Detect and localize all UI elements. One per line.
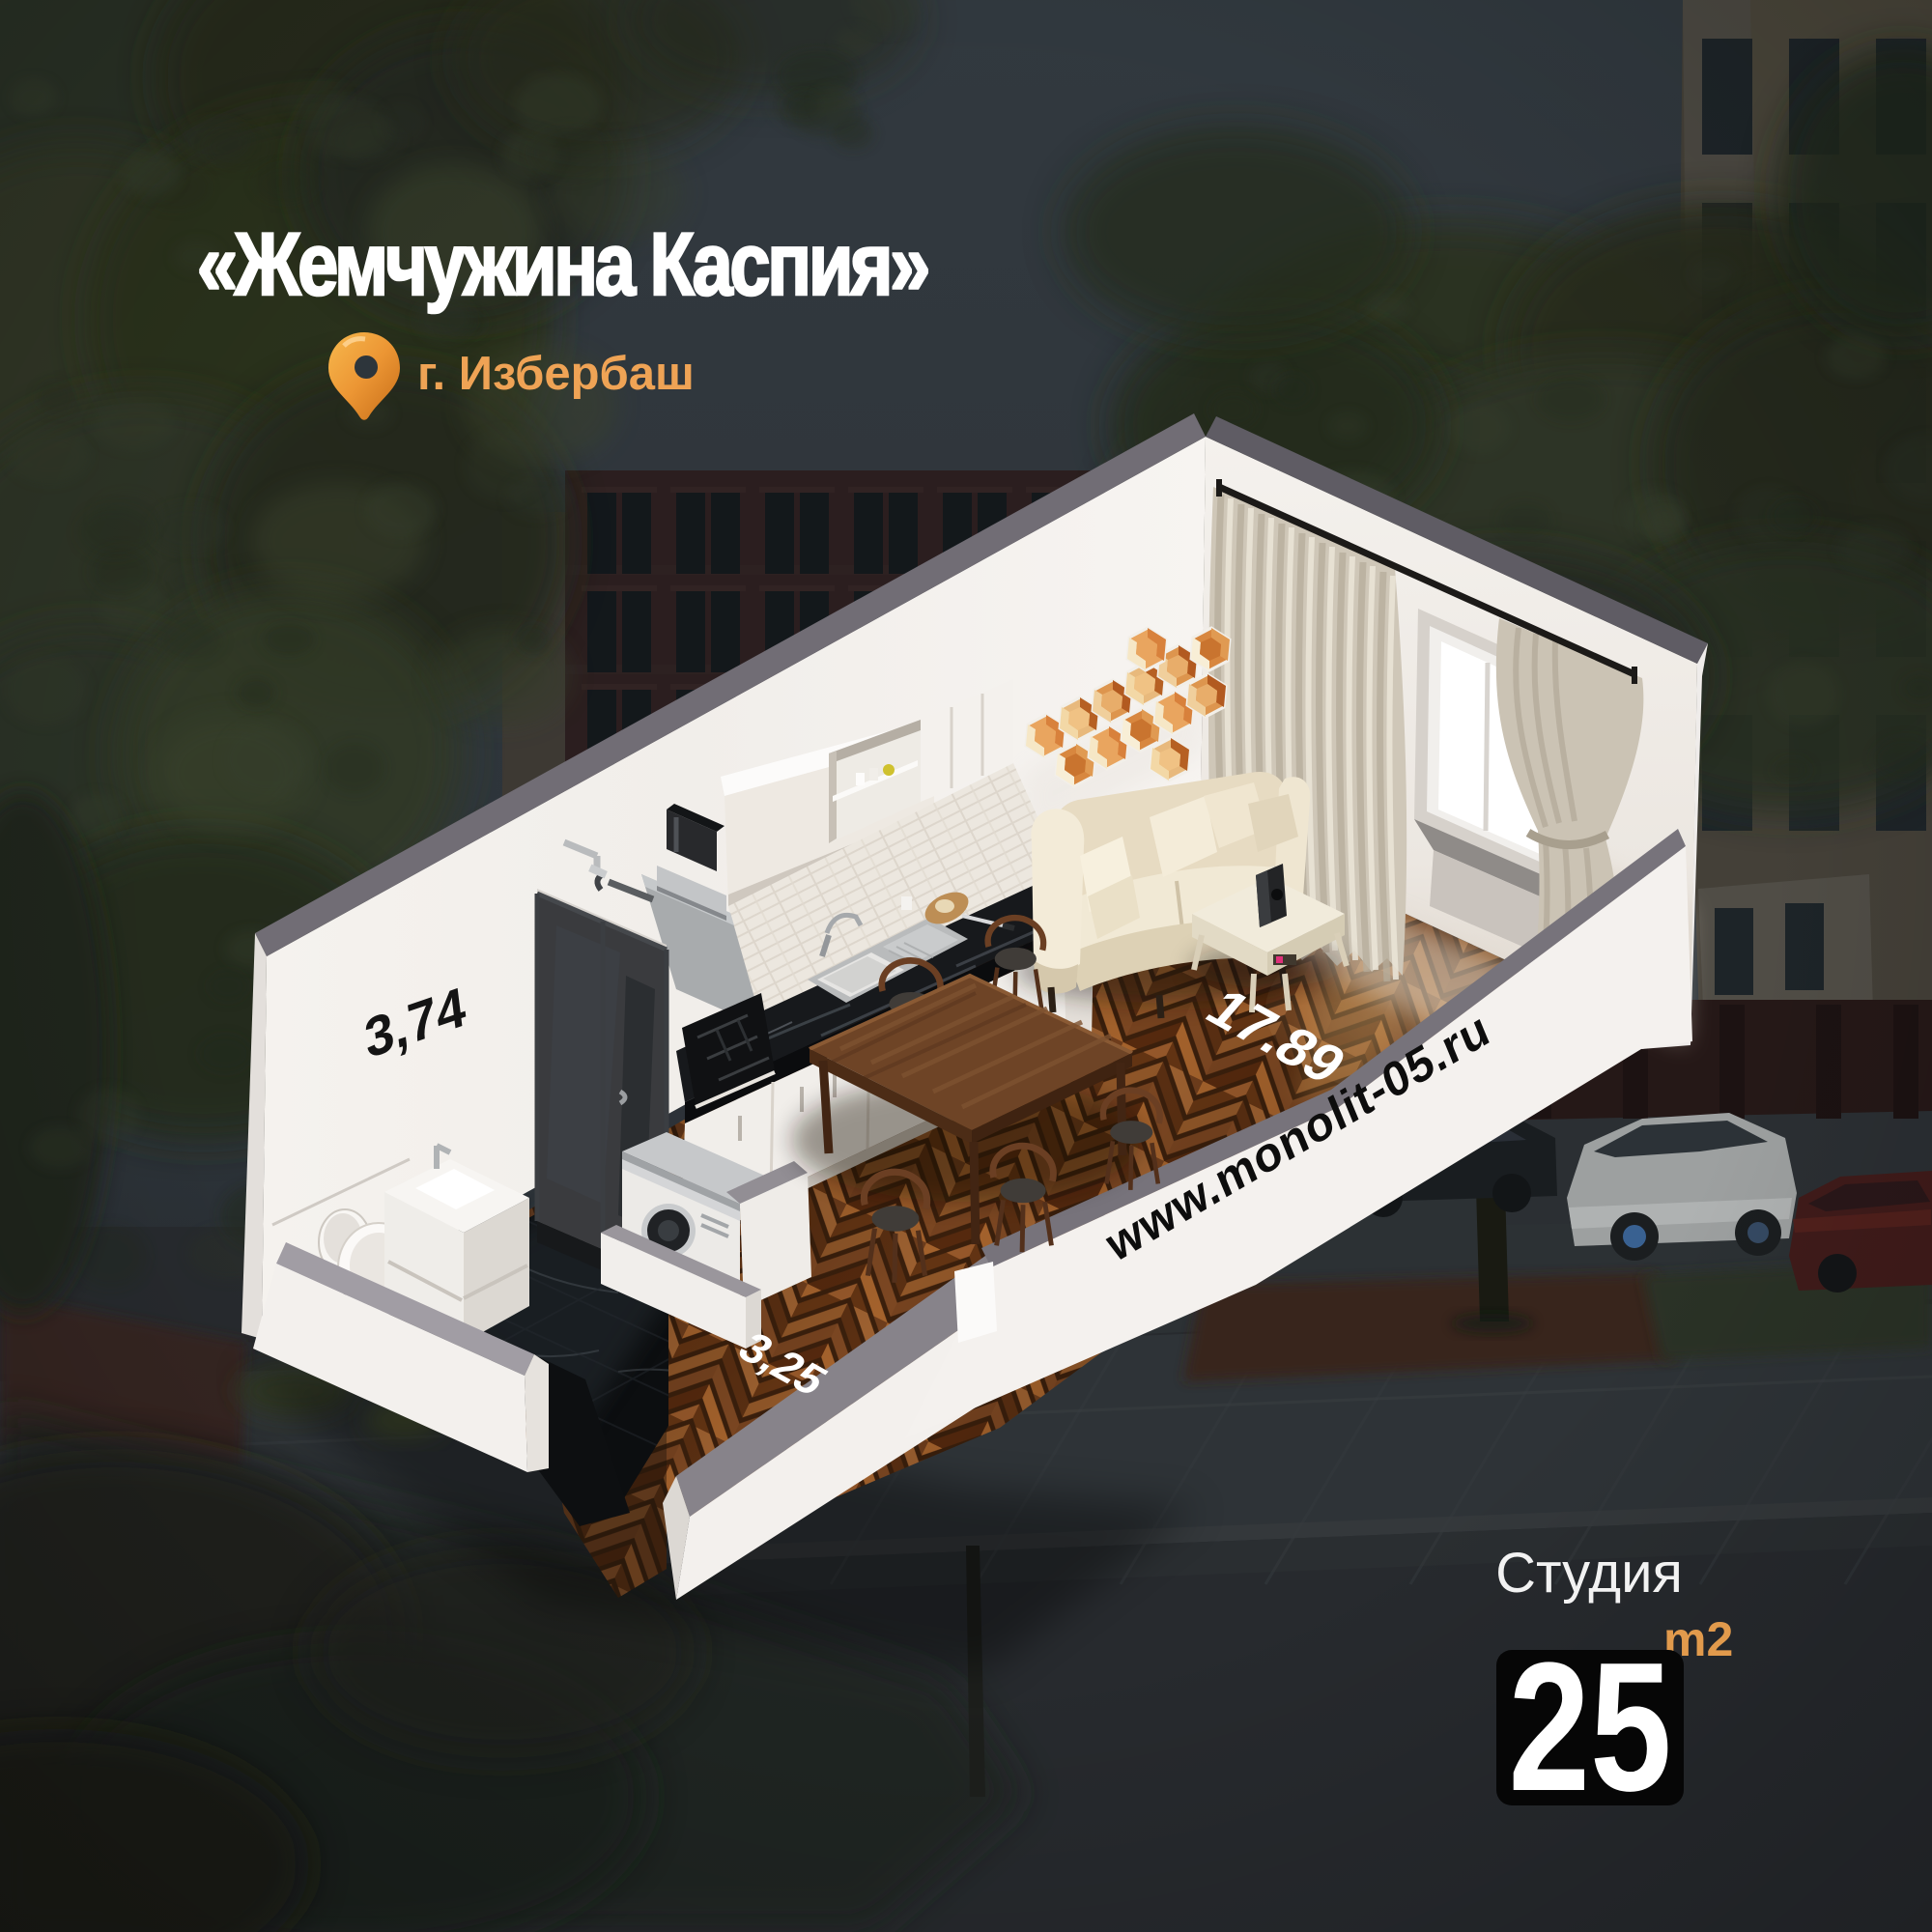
svg-text:Студия: Студия bbox=[1495, 1542, 1683, 1605]
svg-text:«Жемчужина Каспия»: «Жемчужина Каспия» bbox=[197, 214, 928, 314]
svg-text:г. Избербаш: г. Избербаш bbox=[417, 348, 695, 400]
svg-text:25: 25 bbox=[1508, 1625, 1671, 1830]
